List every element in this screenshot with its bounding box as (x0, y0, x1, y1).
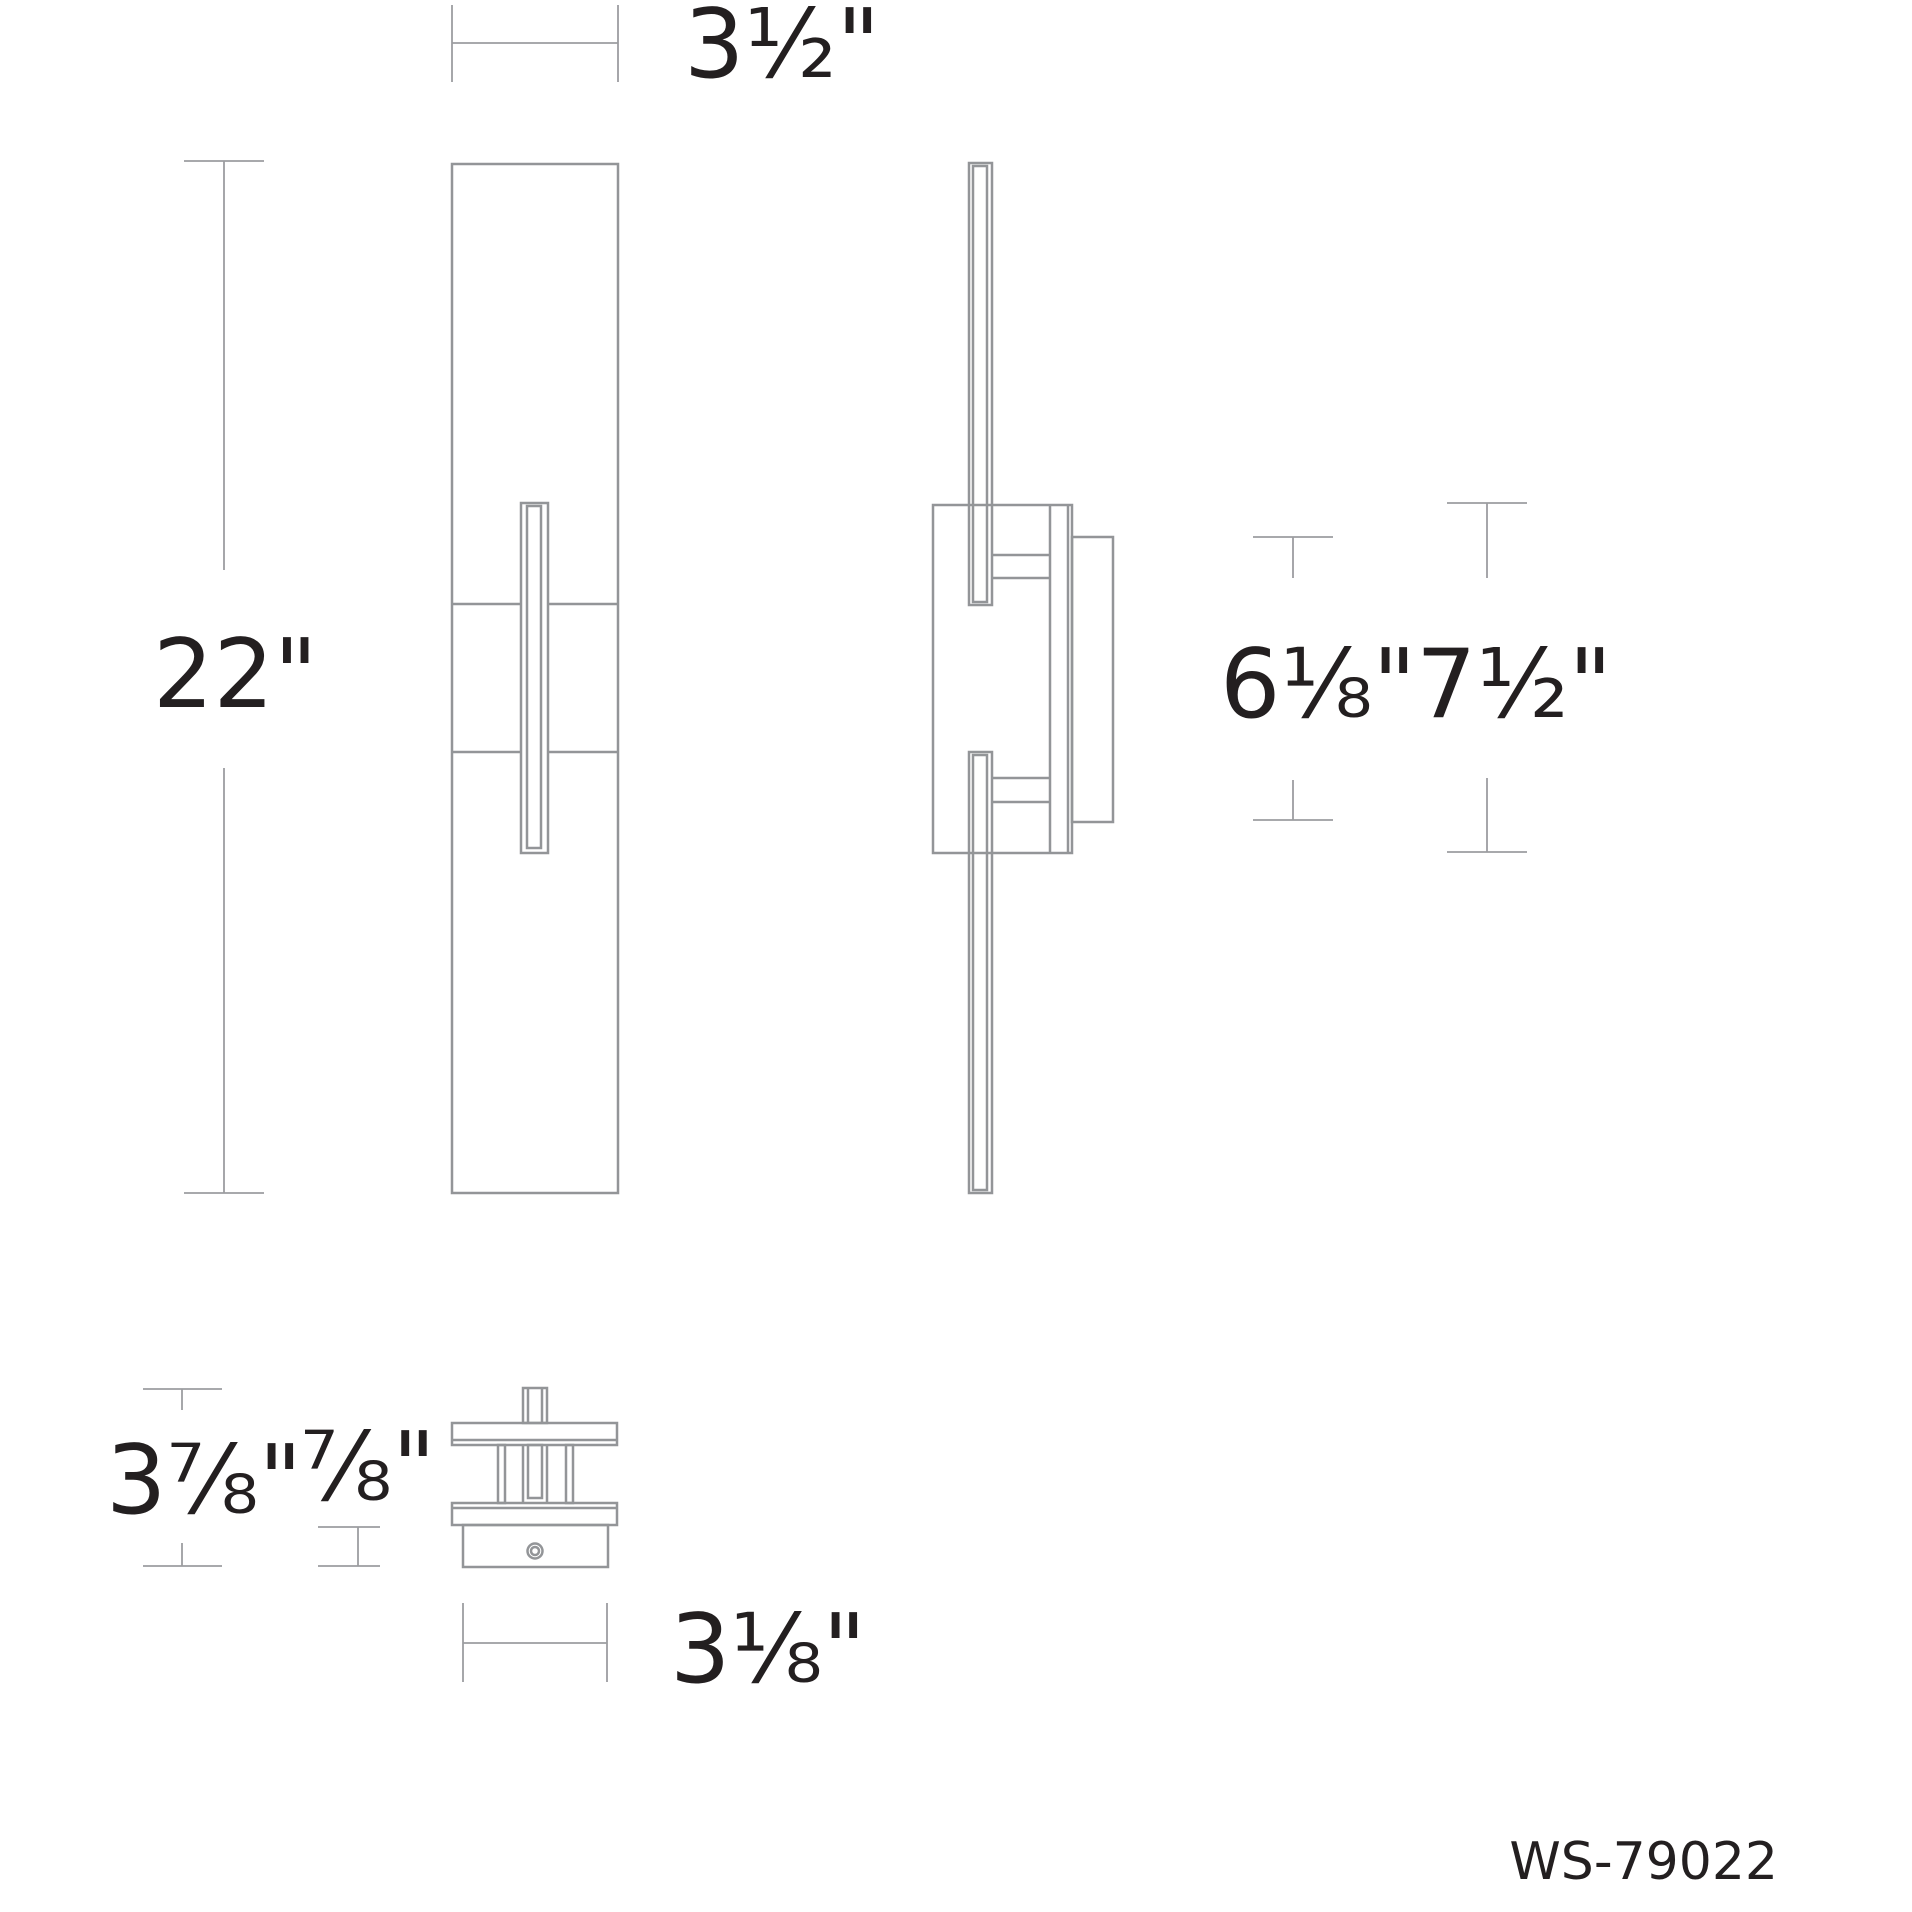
screw-hole-inner (531, 1547, 539, 1555)
top-channel-stub (523, 1388, 547, 1423)
dim-front-width-label: 3½" (684, 0, 880, 100)
spec-sheet: 3½" 22" 6⅛" 7½" 3⅞" ⅞" (0, 0, 1912, 1912)
side-blade-lower-inner (973, 755, 987, 1190)
side-wall-box (1072, 537, 1113, 822)
top-upper-plate (452, 1423, 617, 1445)
top-channel-inner (528, 1445, 542, 1498)
dim-box-height-label: 6⅛" (1220, 630, 1416, 740)
dim-front-height-label: 22" (153, 620, 318, 730)
product-code: WS-79022 (1509, 1832, 1778, 1892)
front-fixture-outline (452, 164, 618, 1193)
dimension-drawing: 3½" 22" 6⅛" 7½" 3⅞" ⅞" (0, 0, 1912, 1912)
front-center-channel-inner (527, 506, 541, 848)
front-view (452, 164, 618, 1193)
dim-plate-height-label: 7½" (1416, 630, 1612, 740)
dim-front-width (452, 5, 618, 82)
dim-top-view-height-label: 3⅞" (106, 1426, 302, 1536)
top-right-post (566, 1445, 573, 1503)
front-center-channel (521, 503, 548, 853)
dim-base-depth-label: ⅞" (300, 1413, 436, 1523)
side-view (933, 163, 1113, 1193)
top-lower-plate (452, 1503, 617, 1525)
dim-base-depth (318, 1527, 380, 1566)
dim-base-width (463, 1603, 607, 1682)
dim-base-width-label: 3⅛" (670, 1595, 866, 1705)
side-blade-upper-inner (973, 166, 987, 602)
top-view (452, 1388, 617, 1567)
top-left-post (498, 1445, 505, 1503)
